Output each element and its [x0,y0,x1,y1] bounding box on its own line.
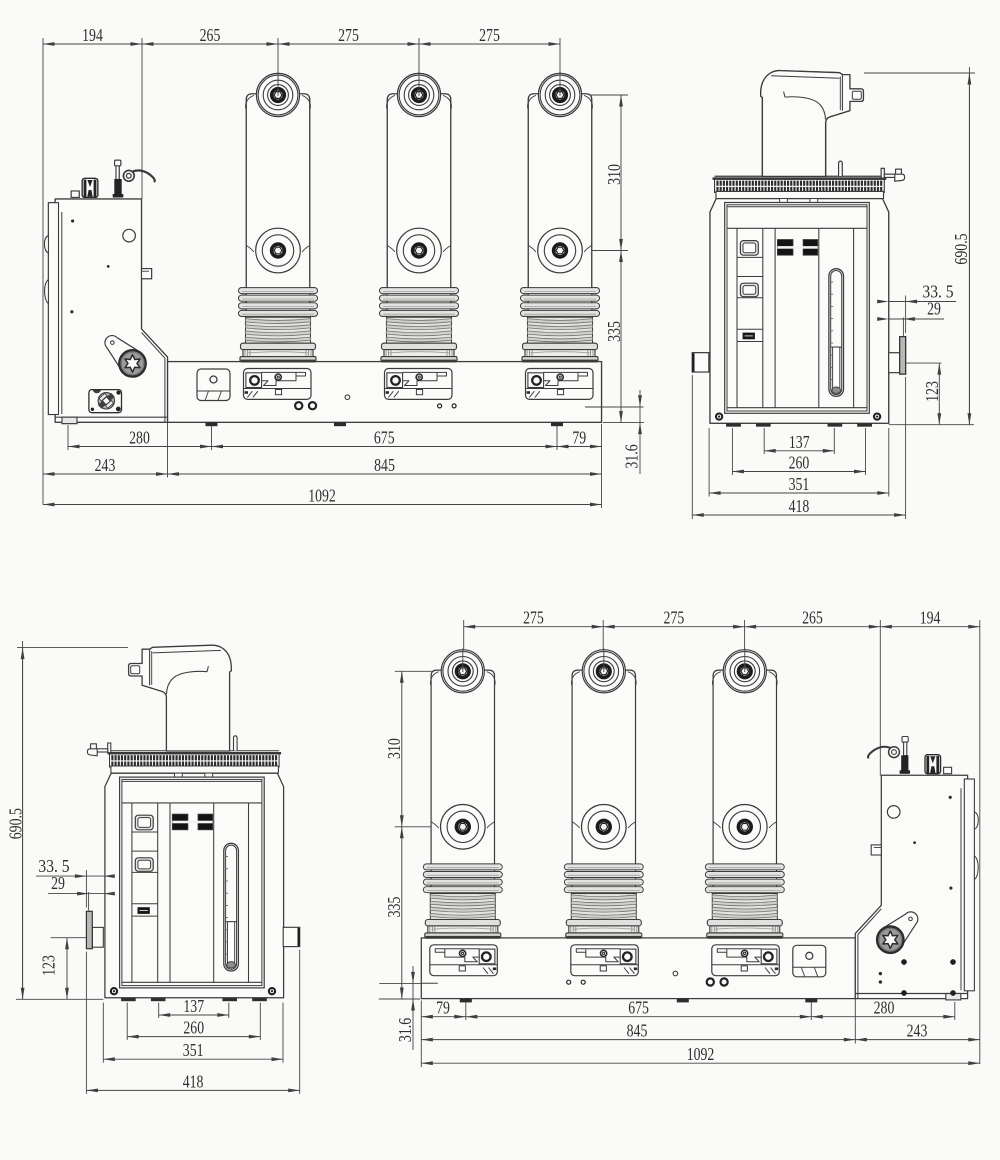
svg-text:1092: 1092 [308,486,336,506]
svg-text:275: 275 [664,608,685,628]
svg-text:690.5: 690.5 [951,233,971,264]
svg-text:280: 280 [129,428,150,448]
svg-text:1092: 1092 [687,1044,715,1064]
svg-text:335: 335 [604,321,624,342]
svg-text:275: 275 [523,608,544,628]
svg-text:845: 845 [627,1021,648,1041]
svg-text:243: 243 [95,455,116,475]
svg-text:280: 280 [874,998,895,1018]
svg-text:137: 137 [789,432,810,452]
svg-text:675: 675 [628,998,649,1018]
svg-text:690.5: 690.5 [6,808,26,839]
svg-text:351: 351 [789,474,810,494]
svg-text:123: 123 [39,955,59,976]
svg-text:243: 243 [907,1021,928,1041]
svg-text:194: 194 [920,608,941,628]
svg-text:275: 275 [338,25,359,45]
svg-text:260: 260 [789,453,810,473]
svg-text:137: 137 [183,996,204,1016]
svg-text:123: 123 [922,381,942,402]
svg-text:265: 265 [802,608,823,628]
svg-text:194: 194 [82,25,103,45]
svg-text:79: 79 [572,428,586,448]
svg-text:310: 310 [384,738,404,759]
svg-text:418: 418 [183,1071,204,1091]
svg-text:310: 310 [604,164,624,185]
svg-text:31.6: 31.6 [622,444,642,468]
svg-text:845: 845 [374,455,395,475]
svg-text:29: 29 [927,299,941,319]
svg-text:265: 265 [200,25,221,45]
svg-text:31.6: 31.6 [395,1018,415,1042]
svg-text:275: 275 [479,25,500,45]
svg-text:335: 335 [384,897,404,918]
svg-text:351: 351 [183,1040,204,1060]
svg-text:29: 29 [51,873,65,893]
svg-text:418: 418 [789,496,810,516]
svg-text:79: 79 [436,998,450,1018]
svg-text:260: 260 [183,1018,204,1038]
svg-text:675: 675 [374,428,395,448]
